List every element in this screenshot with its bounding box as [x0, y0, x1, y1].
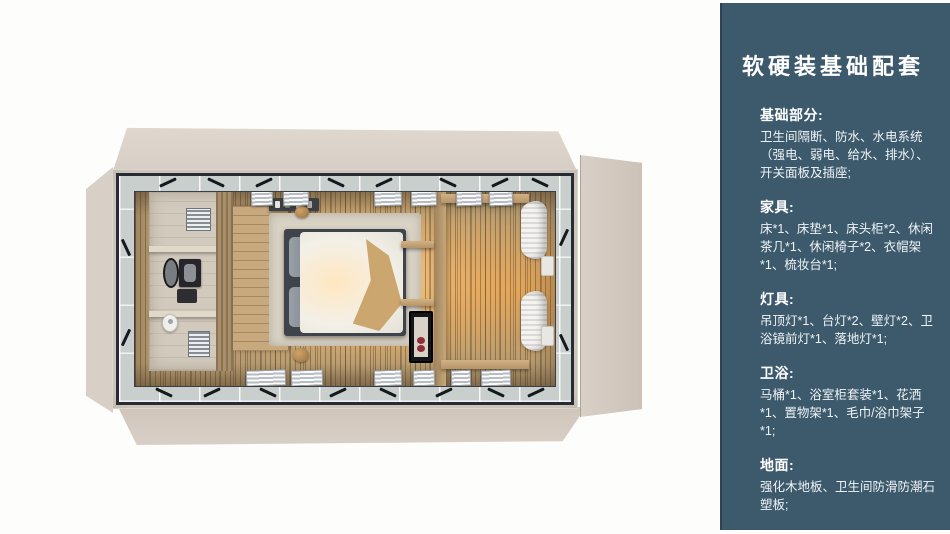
section-body: 强化木地板、卫生间防滑防潮石塑板;: [760, 478, 936, 514]
towel-rack: [188, 331, 210, 357]
window-blind: [283, 191, 310, 206]
wall-shelf: [401, 241, 434, 248]
pouf: [293, 348, 309, 362]
window-blind: [374, 191, 403, 206]
section-basics: 基础部分: 卫生间隔断、防水、水电系统（强电、弱电、给水、排水）、开关面板及插座…: [760, 105, 936, 182]
frame-brace: [379, 387, 397, 397]
window-blind: [291, 369, 324, 386]
window-blind: [451, 370, 472, 387]
vanity-stool: [177, 289, 197, 303]
frame-brace: [207, 177, 225, 187]
spec-sections: 基础部分: 卫生间隔断、防水、水电系统（强电、弱电、给水、排水）、开关面板及插座…: [760, 105, 936, 514]
frame-brace: [487, 387, 505, 397]
window-blind: [481, 369, 512, 386]
frame-brace: [491, 177, 509, 187]
page-title: 软硬装基础配套: [742, 49, 940, 81]
frame-brace: [435, 387, 453, 397]
shell-left-flap: [86, 167, 113, 413]
section-lighting: 灯具: 吊顶灯*1、台灯*2、壁灯*2、卫浴镜前灯*1、落地灯*1;: [760, 289, 936, 348]
window-blind: [246, 369, 287, 386]
info-panel: 软硬装基础配套 基础部分: 卫生间隔断、防水、水电系统（强电、弱电、给水、排水）…: [720, 3, 950, 530]
section-sanitary: 卫浴: 马桶*1、浴室柜套装*1、花洒*1、置物架*1、毛巾/浴巾架子*1;: [760, 363, 936, 440]
wash-basin: [184, 264, 196, 282]
window-blind: [413, 370, 436, 387]
section-body: 卫生间隔断、防水、水电系统（强电、弱电、给水、排水）、开关面板及插座;: [760, 128, 936, 182]
room-render: [70, 105, 715, 450]
pouf: [295, 206, 309, 218]
shell-bottom-flap: [118, 407, 586, 445]
side-table: [541, 326, 554, 346]
partition-wall: [434, 192, 446, 387]
window-blind: [374, 370, 403, 387]
wall-shelf: [441, 360, 529, 369]
curtain: [521, 201, 547, 259]
frame-brace: [439, 177, 457, 187]
section-furniture: 家具: 床*1、床垫*1、床头柜*2、休闲茶几*1、休闲椅子*2、衣帽架*1、梳…: [760, 197, 936, 274]
frame-brace: [559, 229, 569, 247]
steel-frame-glazing: [116, 173, 574, 405]
frame-brace: [327, 177, 345, 187]
window-blind: [489, 191, 514, 206]
section-heading: 地面:: [760, 455, 936, 475]
frame-brace: [121, 239, 131, 257]
section-body: 吊顶灯*1、台灯*2、壁灯*2、卫浴镜前灯*1、落地灯*1;: [760, 312, 936, 348]
frame-brace: [203, 387, 221, 397]
section-body: 床*1、床垫*1、床头柜*2、休闲茶几*1、休闲椅子*2、衣帽架*1、梳妆台*1…: [760, 220, 936, 274]
side-table: [541, 256, 554, 276]
towel-rack: [186, 208, 211, 231]
frame-brace: [121, 329, 131, 347]
double-bed: [284, 229, 406, 336]
room-interior-floor: [134, 191, 556, 387]
frame-brace: [259, 387, 277, 397]
wood-slat-wall: [216, 192, 233, 371]
wall-shelf: [441, 194, 529, 203]
section-flooring: 地面: 强化木地板、卫生间防滑防潮石塑板;: [760, 455, 936, 514]
section-heading: 卫浴:: [760, 363, 936, 383]
section-heading: 灯具:: [760, 289, 936, 309]
window-blind: [456, 191, 483, 206]
frame-brace: [155, 387, 173, 397]
frame-brace: [255, 177, 273, 187]
window-blind: [251, 191, 274, 206]
wall-shelf: [401, 299, 434, 306]
section-heading: 基础部分:: [760, 105, 936, 125]
vanity-mirror: [163, 258, 179, 288]
window-blind: [411, 191, 438, 206]
section-body: 马桶*1、浴室柜套装*1、花洒*1、置物架*1、毛巾/浴巾架子*1;: [760, 386, 936, 440]
minibar-cabinet: [409, 311, 433, 363]
frame-brace: [559, 334, 569, 352]
frame-brace: [531, 177, 549, 187]
section-heading: 家具:: [760, 197, 936, 217]
frame-brace: [375, 177, 393, 187]
frame-brace: [159, 177, 177, 187]
toilet: [162, 314, 178, 332]
shell-top-flap: [113, 127, 577, 171]
shell-right-door-panel: [580, 155, 642, 417]
frame-brace: [527, 387, 545, 397]
frame-brace: [329, 387, 347, 397]
